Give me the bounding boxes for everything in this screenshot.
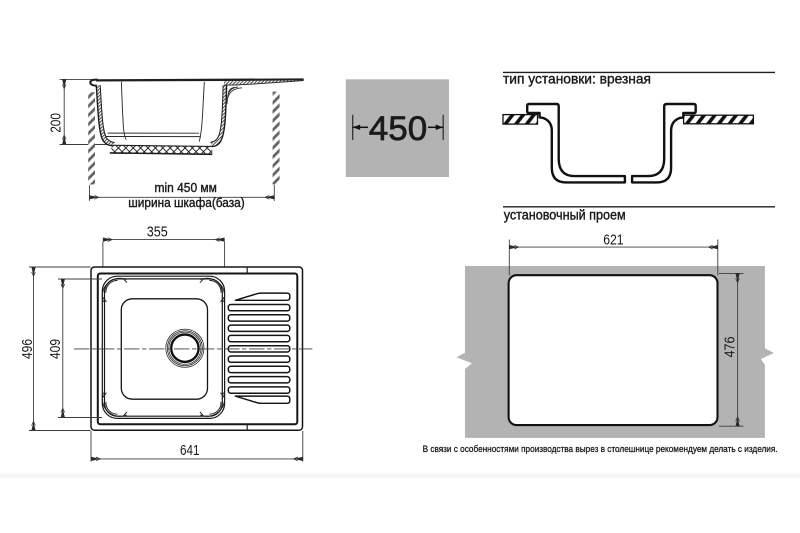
svg-text:355: 355: [147, 224, 168, 241]
svg-text:409: 409: [47, 339, 64, 359]
svg-text:min 450 мм: min 450 мм: [155, 181, 217, 195]
svg-text:200: 200: [47, 113, 64, 133]
svg-text:476: 476: [723, 337, 739, 358]
svg-text:450: 450: [369, 110, 428, 148]
svg-text:621: 621: [603, 233, 623, 249]
svg-text:496: 496: [19, 339, 36, 359]
svg-text:ширина шкафа(база): ширина шкафа(база): [128, 196, 244, 210]
svg-text:641: 641: [180, 442, 200, 459]
svg-text:В связи с особенностями произв: В связи с особенностями производства выр…: [423, 444, 778, 454]
svg-text:тип установки: врезная: тип установки: врезная: [503, 72, 651, 87]
svg-text:установочный проем: установочный проем: [504, 207, 626, 222]
